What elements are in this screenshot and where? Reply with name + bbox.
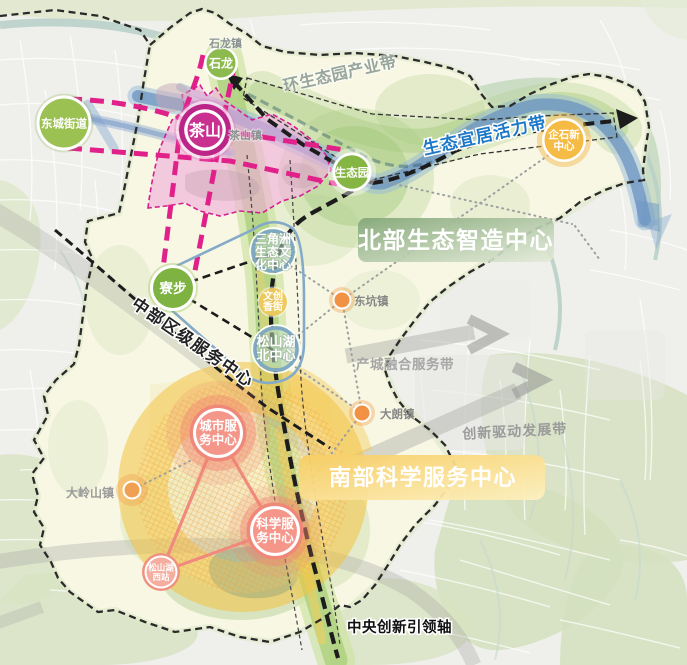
svg-text:务中心: 务中心 (256, 530, 294, 545)
svg-text:中央创新引领轴: 中央创新引领轴 (347, 618, 452, 636)
svg-text:大岭山镇: 大岭山镇 (66, 485, 114, 500)
svg-text:科学服: 科学服 (256, 516, 294, 531)
svg-text:茶山镇: 茶山镇 (228, 128, 262, 142)
svg-text:松山湖: 松山湖 (256, 334, 295, 349)
svg-text:化中心: 化中心 (255, 257, 291, 272)
svg-text:松山湖: 松山湖 (148, 563, 174, 573)
svg-text:北部生态智造中心: 北部生态智造中心 (358, 227, 554, 253)
svg-text:生态文: 生态文 (255, 244, 292, 259)
svg-text:企石新: 企石新 (547, 128, 580, 141)
svg-text:务中心: 务中心 (199, 432, 237, 447)
svg-text:中心: 中心 (554, 140, 575, 153)
svg-text:产城融合服务带: 产城融合服务带 (356, 356, 454, 372)
svg-text:城市服: 城市服 (199, 418, 237, 433)
svg-text:东城街道: 东城街道 (41, 117, 87, 131)
svg-text:生态园: 生态园 (335, 166, 370, 180)
svg-text:南部科学服务中心: 南部科学服务中心 (329, 465, 517, 490)
svg-text:茶山: 茶山 (188, 121, 221, 140)
svg-text:东坑镇: 东坑镇 (354, 294, 389, 308)
svg-text:香街: 香街 (263, 300, 283, 313)
svg-text:三角洲: 三角洲 (255, 231, 291, 246)
svg-text:寮步: 寮步 (159, 280, 187, 296)
svg-text:北中心: 北中心 (256, 348, 295, 363)
svg-text:大朗镇: 大朗镇 (380, 407, 415, 421)
svg-text:文创: 文创 (263, 290, 283, 303)
svg-text:石龙镇: 石龙镇 (208, 36, 242, 50)
svg-text:石龙: 石龙 (208, 56, 233, 71)
svg-text:西站: 西站 (152, 572, 170, 582)
